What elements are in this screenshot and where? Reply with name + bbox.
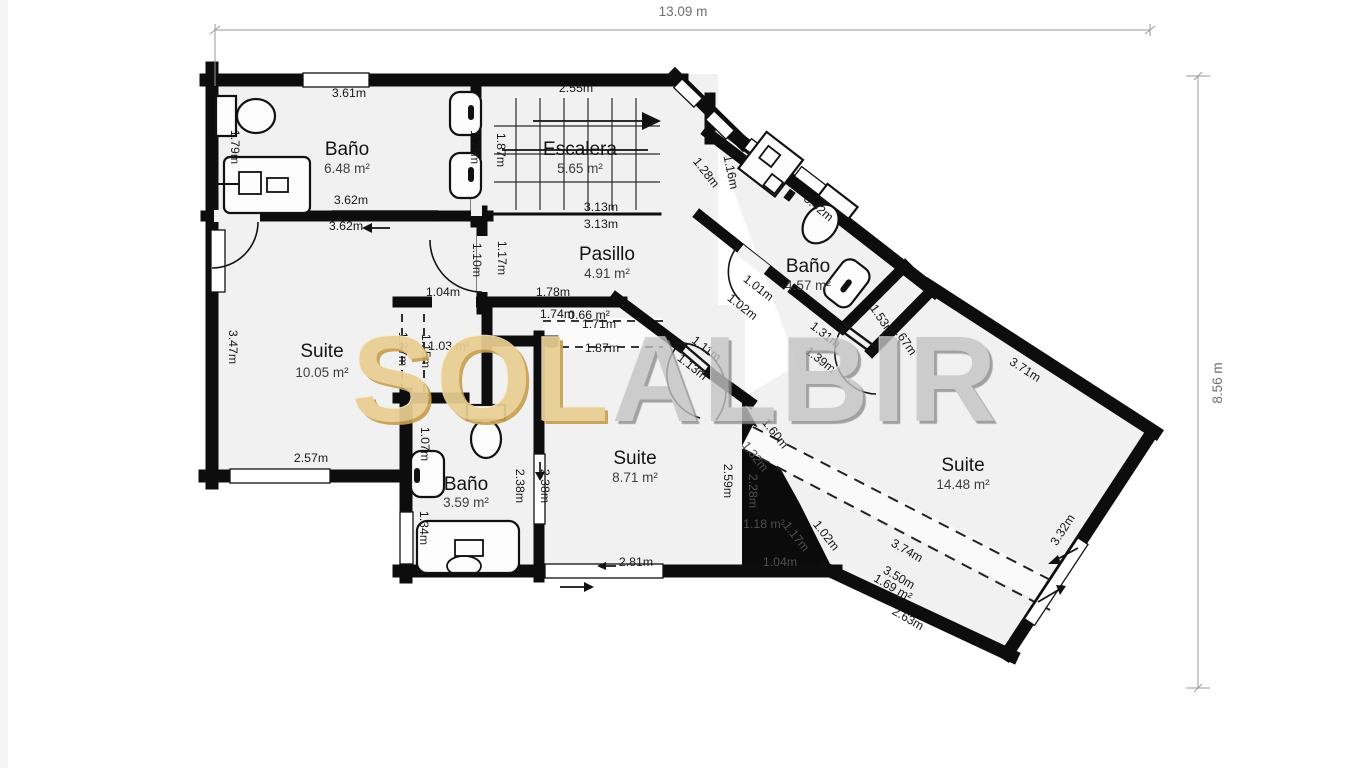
room-area-suite-center: 8.71 m² [612, 470, 658, 485]
room-name-suite-right: Suite [941, 455, 984, 476]
room-area-bano-top-left: 6.48 m² [324, 161, 370, 176]
toilet-bowl [237, 99, 275, 133]
measurement-label: 2.55m [559, 81, 593, 95]
measurement-label: 1.07m [418, 427, 432, 461]
sink-basin [450, 92, 481, 135]
sink-faucet [468, 105, 474, 120]
measurement-label: 2.38m [538, 469, 552, 503]
room-name-suite-center: Suite [613, 448, 656, 469]
measurement-label: 1.34m [417, 511, 431, 545]
bathtub [417, 521, 519, 573]
measurement-label: 2.38m [513, 469, 527, 503]
sink-faucet [468, 167, 474, 182]
measurement-label: 3.13m [584, 217, 618, 231]
measurement-label: 2.59m [721, 464, 735, 498]
measurement-label: 1.79m [468, 130, 482, 164]
measurement-label: 3.62m [334, 193, 368, 207]
room-name-pasillo: Pasillo [579, 244, 635, 265]
measurement-label: 1.10m [470, 243, 484, 277]
room-name-bano-top-left: Baño [325, 139, 369, 160]
measurement-label: 1.79m [228, 130, 242, 164]
overall-height-label: 8.56 m [1210, 362, 1225, 403]
measurement-label: 0.66 m² [568, 308, 610, 322]
measurement-label: 1.78m [536, 285, 570, 299]
overall-width-label: 13.09 m [659, 4, 708, 19]
measurement-label: 3.61m [332, 86, 366, 100]
measurement-label: 1.04m [426, 285, 460, 299]
measurement-label: 1.18 m² [743, 517, 785, 531]
room-name-suite-left: Suite [300, 341, 343, 362]
room-area-suite-left: 10.05 m² [295, 365, 349, 380]
room-name-bano-top-right: Baño [786, 256, 830, 277]
room-name-bano-bottom: Baño [444, 474, 488, 495]
measurement-label: 2.28m [746, 474, 760, 508]
floor-plan-drawing: 1.51m [0, 0, 1365, 768]
measurement-label: 1.87m [585, 341, 619, 355]
room-area-escalera: 5.65 m² [557, 161, 603, 176]
measurement-label: 1.04m [763, 555, 797, 569]
measurement-label: 2.81m [619, 555, 653, 569]
floor-plan-page: 1.51m [0, 0, 1365, 768]
measurement-label: 3.47m [226, 330, 240, 364]
measurement-label: 2.57m [294, 451, 328, 465]
measurement-label: 3.13m [584, 200, 618, 214]
toilet-tank [467, 405, 505, 420]
measurement-label: 1.37m [396, 332, 410, 366]
measurement-label: 1.03 m² [428, 339, 470, 353]
room-area-bano-top-right: 4.57 m² [785, 278, 831, 293]
measurement-label: 1.17m [495, 241, 509, 275]
room-area-pasillo: 4.91 m² [584, 266, 630, 281]
room-area-suite-right: 14.48 m² [936, 477, 990, 492]
sink-faucet [414, 468, 420, 483]
room-area-bano-bottom: 3.59 m² [443, 495, 489, 510]
measurement-label: 3.62m [329, 219, 363, 233]
toilet-bowl [471, 420, 501, 458]
